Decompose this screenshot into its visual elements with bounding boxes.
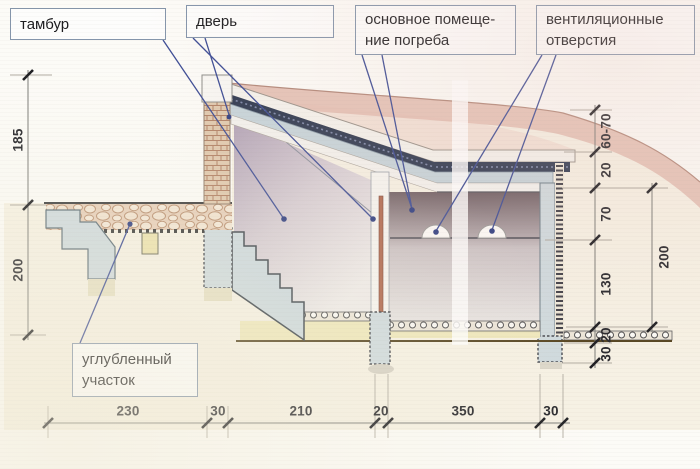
door-leaf bbox=[379, 196, 383, 312]
callout-recessed-line1: углубленный bbox=[82, 349, 188, 370]
cellar-section-diagram: тамбур дверь основное помеще- ние погреб… bbox=[0, 0, 700, 469]
dim-right-60-70: 60-70 bbox=[599, 113, 614, 149]
dim-left-185: 185 bbox=[11, 128, 26, 151]
dim-right-30: 30 bbox=[599, 346, 614, 361]
dim-right-70: 70 bbox=[599, 206, 614, 221]
entrance-foundation bbox=[204, 228, 232, 288]
callout-vents-line1: вентиляционные bbox=[546, 9, 685, 30]
drain-trench bbox=[142, 233, 158, 254]
callout-recessed-line2: участок bbox=[82, 370, 188, 391]
callout-main-room-line2: ние погреба bbox=[365, 30, 506, 51]
dim-bottom-30a: 30 bbox=[210, 404, 225, 419]
dim-bottom-350: 350 bbox=[451, 404, 474, 419]
callout-main-room: основное помеще- ние погреба bbox=[355, 5, 516, 55]
dim-bottom-30b: 30 bbox=[543, 404, 558, 419]
callout-tambur: тамбур bbox=[10, 8, 166, 40]
section-drawing bbox=[0, 0, 700, 469]
floor-course-right bbox=[564, 331, 672, 340]
entrance-foundation-shadow bbox=[204, 288, 232, 301]
dim-right-outer-200: 200 bbox=[657, 245, 672, 268]
right-wall-foundation bbox=[538, 336, 562, 362]
callout-door-label: дверь bbox=[196, 11, 324, 32]
floor-course-vestibule bbox=[298, 312, 371, 321]
callout-vents-line2: отверстия bbox=[546, 30, 685, 51]
dim-right-20b: 20 bbox=[599, 327, 614, 342]
callout-tambur-label: тамбур bbox=[20, 14, 156, 35]
sand-layer-vestibule bbox=[240, 321, 371, 341]
right-foundation-shadow bbox=[540, 362, 562, 369]
callout-main-room-line1: основное помеще- bbox=[365, 9, 506, 30]
entrance-brick-wall bbox=[202, 75, 232, 204]
dim-bottom-20: 20 bbox=[373, 404, 388, 419]
dim-right-130: 130 bbox=[599, 272, 614, 295]
right-wall bbox=[538, 163, 564, 369]
callout-recessed: углубленный участок bbox=[72, 343, 198, 397]
dim-bottom-210: 210 bbox=[289, 404, 312, 419]
door-foundation bbox=[370, 312, 390, 364]
dim-bottom-230: 230 bbox=[116, 404, 139, 419]
callout-door: дверь bbox=[186, 5, 334, 38]
dim-right-20a: 20 bbox=[599, 162, 614, 177]
dim-left-200: 200 bbox=[11, 258, 26, 281]
wall-cap-block bbox=[202, 75, 232, 102]
callout-vents: вентиляционные отверстия bbox=[536, 5, 695, 55]
scan-break-band bbox=[452, 80, 468, 345]
door-foundation-shadow bbox=[368, 364, 394, 374]
